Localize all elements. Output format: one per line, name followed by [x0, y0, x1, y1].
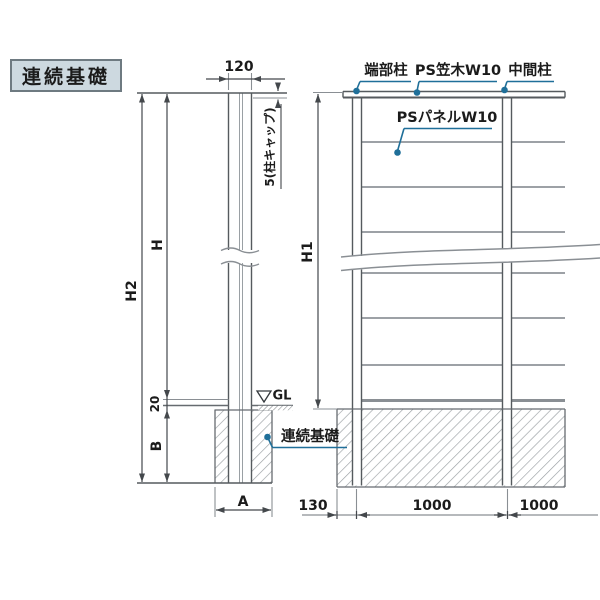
dim-h1-text: H1: [301, 241, 315, 262]
diagram-canvas: 連続基礎 120 5(柱キャップ) H2 H 20 B A GL 連続基礎 端部…: [0, 0, 600, 600]
dim-post-width-text: 120: [224, 60, 253, 74]
end-post-label: 端部柱: [364, 64, 408, 79]
dim-1000-second-text: 1000: [520, 499, 559, 513]
page-title: 連続基礎: [22, 62, 110, 89]
dim-b-text: B: [150, 441, 164, 452]
elevation-break-line: [341, 245, 600, 271]
foundation-callout-label: 連続基礎: [281, 430, 339, 445]
mid-post-label: 中間柱: [508, 64, 552, 79]
section-break-line: [221, 248, 259, 266]
dim-cap-text: 5(柱キャップ): [264, 107, 276, 186]
leader-dot-icon: [414, 89, 421, 96]
fence-cap: [343, 92, 565, 98]
leader-dot-icon: [353, 88, 360, 95]
dim-130-text: 130: [298, 499, 327, 513]
dim-h-text: H: [151, 239, 165, 251]
elevation-foundation-hatch: [337, 409, 565, 487]
end-post: [353, 98, 362, 486]
cap-label: PS笠木W10: [415, 64, 501, 79]
elevation-view-linework: [337, 92, 600, 488]
dim-20-text: 20: [149, 396, 161, 413]
dim-h2-text: H2: [125, 280, 139, 301]
intermediate-post: [503, 98, 512, 486]
section-post: [229, 93, 252, 483]
leader-dot-icon: [501, 87, 508, 94]
title-box: 連続基礎: [10, 59, 122, 92]
panel-label: PSパネルW10: [397, 111, 498, 126]
dim-h1-line: [313, 93, 343, 410]
leader-dot-icon: [394, 149, 401, 156]
dim-1000-first-text: 1000: [413, 499, 452, 513]
dim-a-text: A: [238, 495, 249, 509]
gl-label: GL: [273, 390, 292, 403]
dim-120-line: [206, 73, 285, 90]
